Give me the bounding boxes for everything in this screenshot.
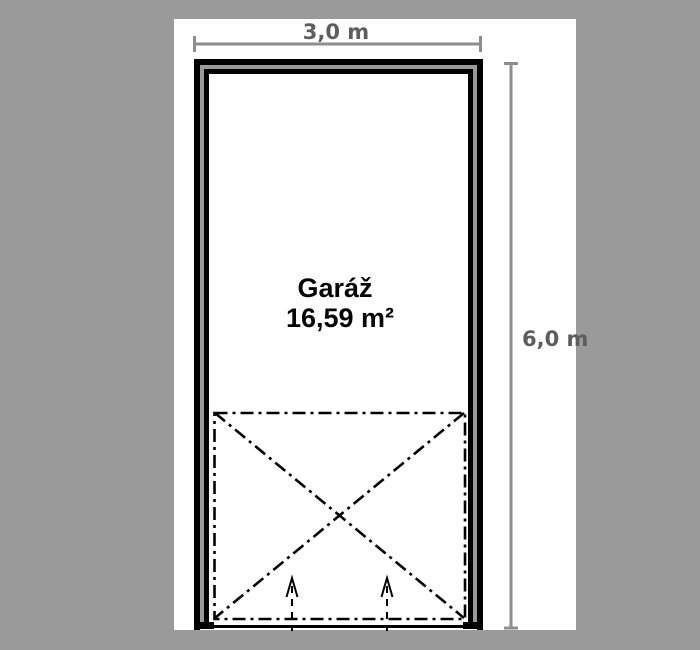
dimension-width-label: 3,0 m	[303, 20, 369, 44]
dimension-height-label: 6,0 m	[522, 327, 588, 351]
floor-plan-page: 3,0 m 6,0 m Garáž 16,59 m²	[0, 0, 700, 650]
wall-end-cap-right	[463, 622, 483, 629]
room-area-label: 16,59 m²	[286, 303, 394, 333]
floor-plan-drawing: 3,0 m 6,0 m Garáž 16,59 m²	[0, 0, 700, 650]
wall-end-cap-left	[194, 622, 214, 629]
room-name-label: Garáž	[297, 273, 372, 303]
